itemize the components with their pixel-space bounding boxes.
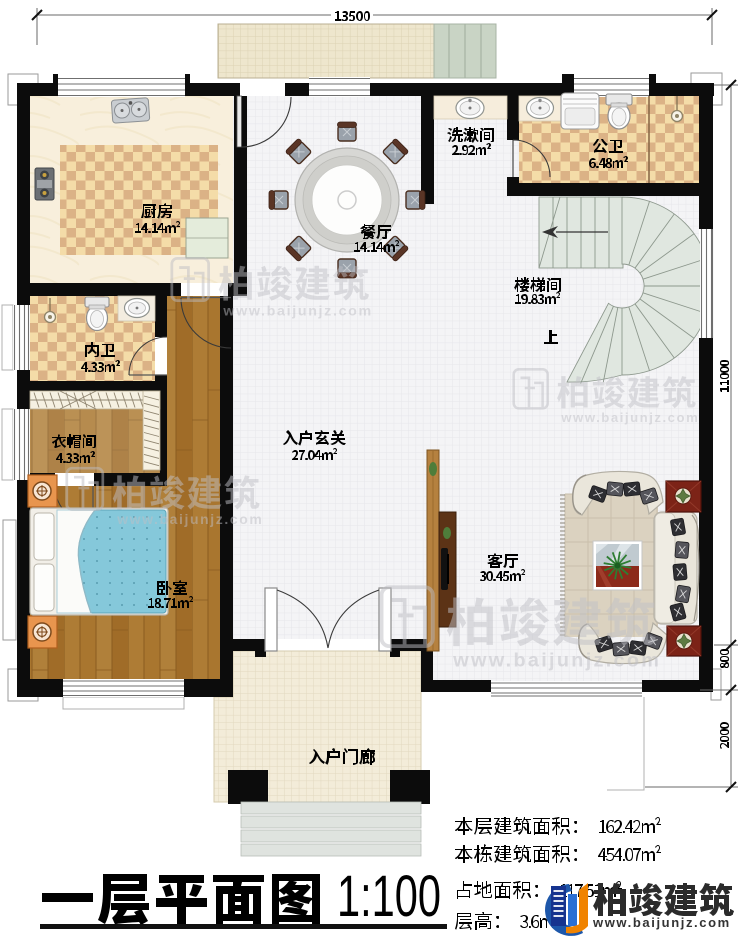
svg-text:www.baijunjz.com: www.baijunjz.com (592, 915, 731, 930)
svg-text:1:100: 1:100 (337, 865, 441, 929)
